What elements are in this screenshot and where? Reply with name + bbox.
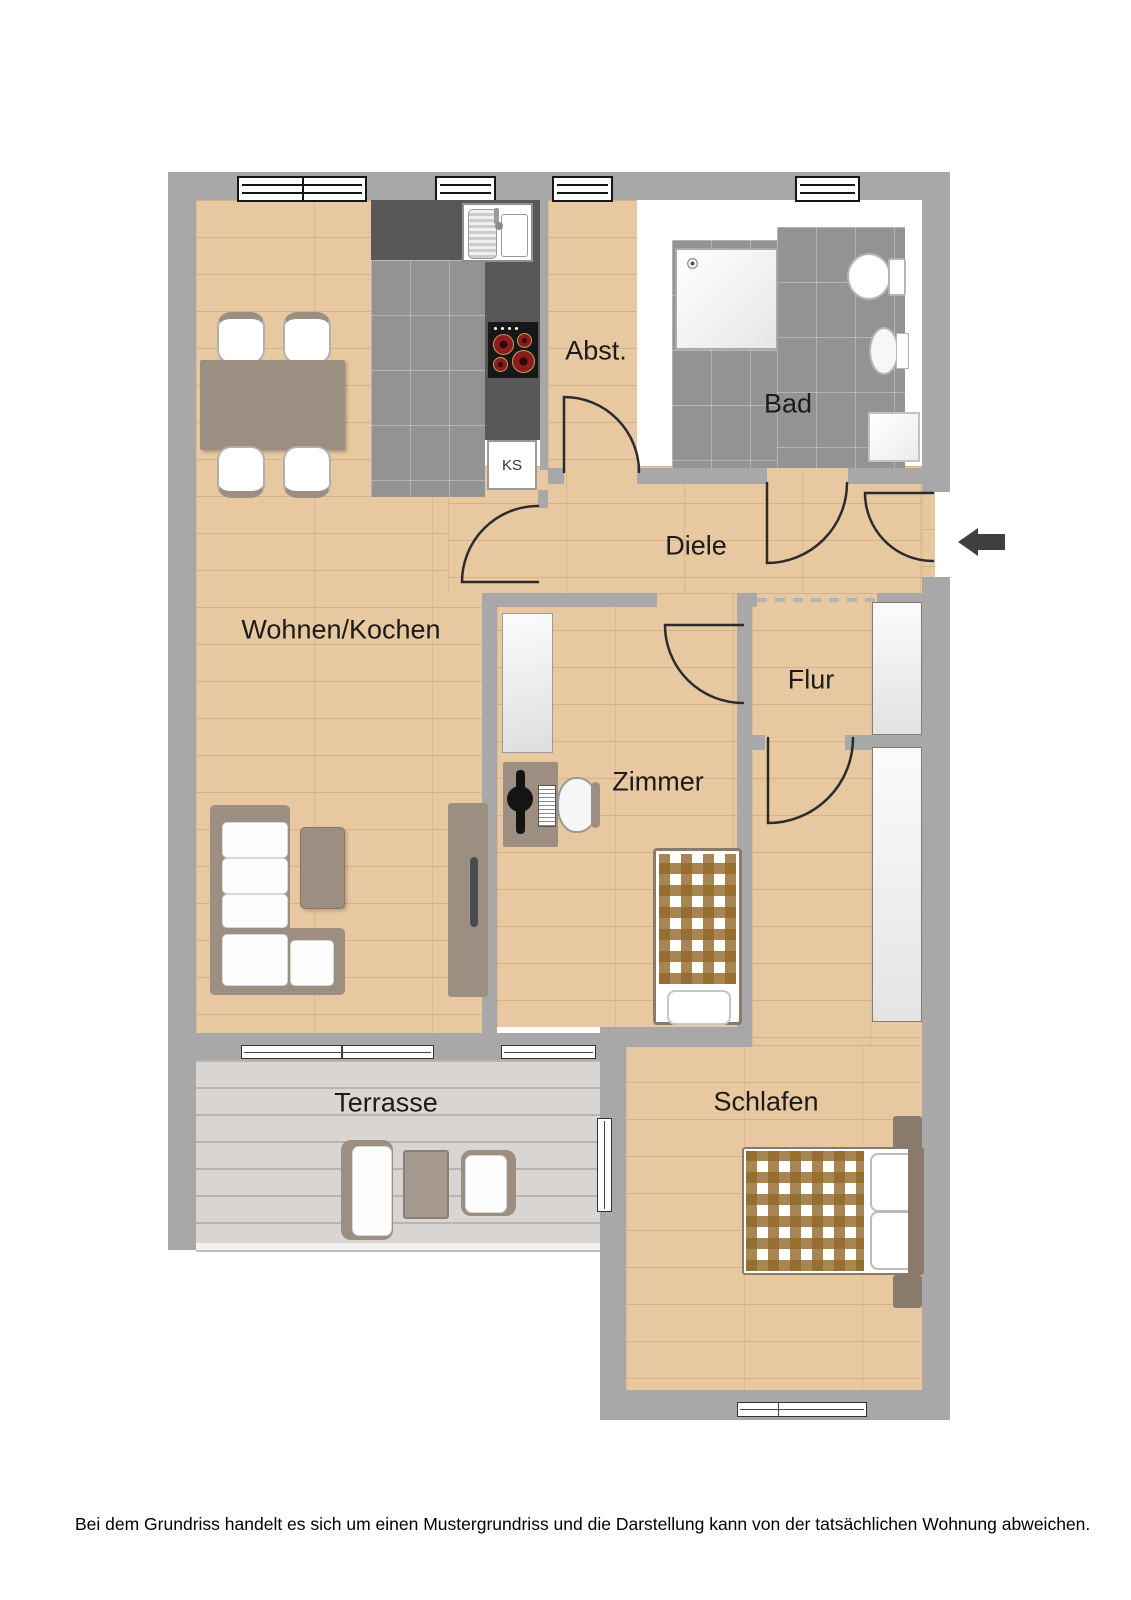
dining-table xyxy=(200,360,345,450)
single-bed-pillow xyxy=(667,990,731,1025)
entrance-floor-jut xyxy=(922,492,935,577)
stove-burner xyxy=(517,333,532,348)
toilet-tank xyxy=(888,258,906,296)
entrance-arrow-icon xyxy=(958,528,1005,556)
room-label-abstellraum: Abst. xyxy=(565,336,627,367)
terrace-armchair xyxy=(461,1150,516,1216)
office-chair xyxy=(557,777,599,833)
arrow-head xyxy=(958,528,978,556)
tv-sideboard xyxy=(448,803,488,997)
disclaimer-text: Bei dem Grundriss handelt es sich um ein… xyxy=(75,1514,1090,1535)
bed-post-top xyxy=(893,1116,922,1149)
stove xyxy=(488,322,538,378)
wall-kitchen-stub xyxy=(538,490,548,508)
dining-chair xyxy=(217,312,265,364)
bathroom-sink xyxy=(869,327,899,375)
wall-bath-south-b xyxy=(848,468,922,484)
kitchen-tile-floor xyxy=(371,260,485,497)
window-terrace-side xyxy=(597,1118,612,1212)
washing-machine xyxy=(868,412,920,462)
stove-burner xyxy=(493,357,508,372)
keyboard xyxy=(538,785,556,827)
dining-chair xyxy=(217,446,265,498)
plant xyxy=(205,735,257,795)
window-storage-top xyxy=(552,176,613,202)
double-bed-blanket xyxy=(746,1151,864,1271)
fridge-label: KS xyxy=(502,457,522,474)
sofa-cushion xyxy=(222,822,288,858)
room-label-schlafen: Schlafen xyxy=(713,1087,818,1118)
room-label-terrasse: Terrasse xyxy=(334,1088,438,1119)
shower-drain xyxy=(687,258,698,269)
bathroom-sink-cabinet xyxy=(896,333,909,369)
terrace-bench xyxy=(341,1140,393,1240)
wall-right-lower xyxy=(922,577,950,1420)
room-label-flur: Flur xyxy=(788,665,835,696)
sofa-cushion xyxy=(222,934,288,986)
wall-zimmer-bedroom xyxy=(600,1027,752,1047)
terrace-bench-cushion xyxy=(352,1146,392,1236)
terrace-armchair-cushion xyxy=(465,1155,507,1213)
single-bed xyxy=(653,848,742,1025)
terrace-table xyxy=(403,1150,449,1219)
terrace-edge xyxy=(196,1243,600,1252)
office-chair-back xyxy=(591,782,600,828)
sink-faucet-knob xyxy=(495,222,503,230)
stove-burner xyxy=(512,350,535,373)
terrace-door-left xyxy=(241,1045,434,1059)
bed-headboard xyxy=(908,1149,922,1273)
window-divider xyxy=(302,178,304,200)
window-kitchen-top xyxy=(435,176,496,202)
bed-post-bottom xyxy=(893,1275,922,1308)
sink-draining-board xyxy=(468,209,497,259)
wall-bath-south-a xyxy=(637,468,767,484)
plant xyxy=(866,1326,916,1384)
wall-storage-south xyxy=(548,468,564,484)
window-bath-top xyxy=(795,176,860,202)
floor-plan-page: KS xyxy=(0,0,1131,1600)
toilet-bowl xyxy=(847,253,891,300)
stove-knobs xyxy=(494,327,497,330)
plant xyxy=(506,858,554,913)
sofa-cushion xyxy=(290,940,334,986)
window-living-top xyxy=(237,176,367,202)
sofa-cushion xyxy=(222,858,288,894)
wall-right-upper xyxy=(922,200,950,492)
stove-burner xyxy=(493,334,514,355)
wall-left xyxy=(168,200,196,1250)
wall-diele-south-a xyxy=(482,593,657,607)
wall-terrace-bedroom xyxy=(600,1047,626,1390)
window-divider xyxy=(778,1403,780,1416)
computer-monitor-bar xyxy=(516,770,525,834)
room-label-zimmer: Zimmer xyxy=(612,767,703,798)
terrace-door-right xyxy=(501,1045,596,1059)
wall-diele-south-stub xyxy=(745,593,757,607)
window-divider xyxy=(341,1046,343,1058)
room-label-diele: Diele xyxy=(665,531,727,562)
wall-flur-bedroom-a xyxy=(737,735,765,750)
room-label-wohnen-kochen: Wohnen/Kochen xyxy=(241,615,440,646)
zimmer-wardrobe xyxy=(502,613,553,753)
floor-plan: KS xyxy=(0,0,1131,1600)
desk xyxy=(503,762,558,847)
fridge: KS xyxy=(487,440,537,490)
wall-kitchen-storage xyxy=(540,200,548,470)
dining-chair xyxy=(283,446,331,498)
plant xyxy=(206,1184,256,1239)
shower xyxy=(675,248,778,350)
flur-wardrobe-small xyxy=(872,602,922,735)
sink-basin xyxy=(501,214,528,257)
sofa-cushion xyxy=(222,894,288,928)
flur-wardrobe-large xyxy=(872,747,922,1022)
room-label-bad: Bad xyxy=(764,389,812,420)
coffee-table xyxy=(300,827,345,909)
single-bed-blanket xyxy=(659,854,736,984)
arrow-shaft xyxy=(977,534,1005,550)
kitchen-sink xyxy=(462,203,533,262)
window-bedroom-bottom xyxy=(737,1402,867,1417)
tv-screen xyxy=(469,857,478,927)
dining-chair xyxy=(283,312,331,364)
double-bed xyxy=(742,1147,924,1275)
